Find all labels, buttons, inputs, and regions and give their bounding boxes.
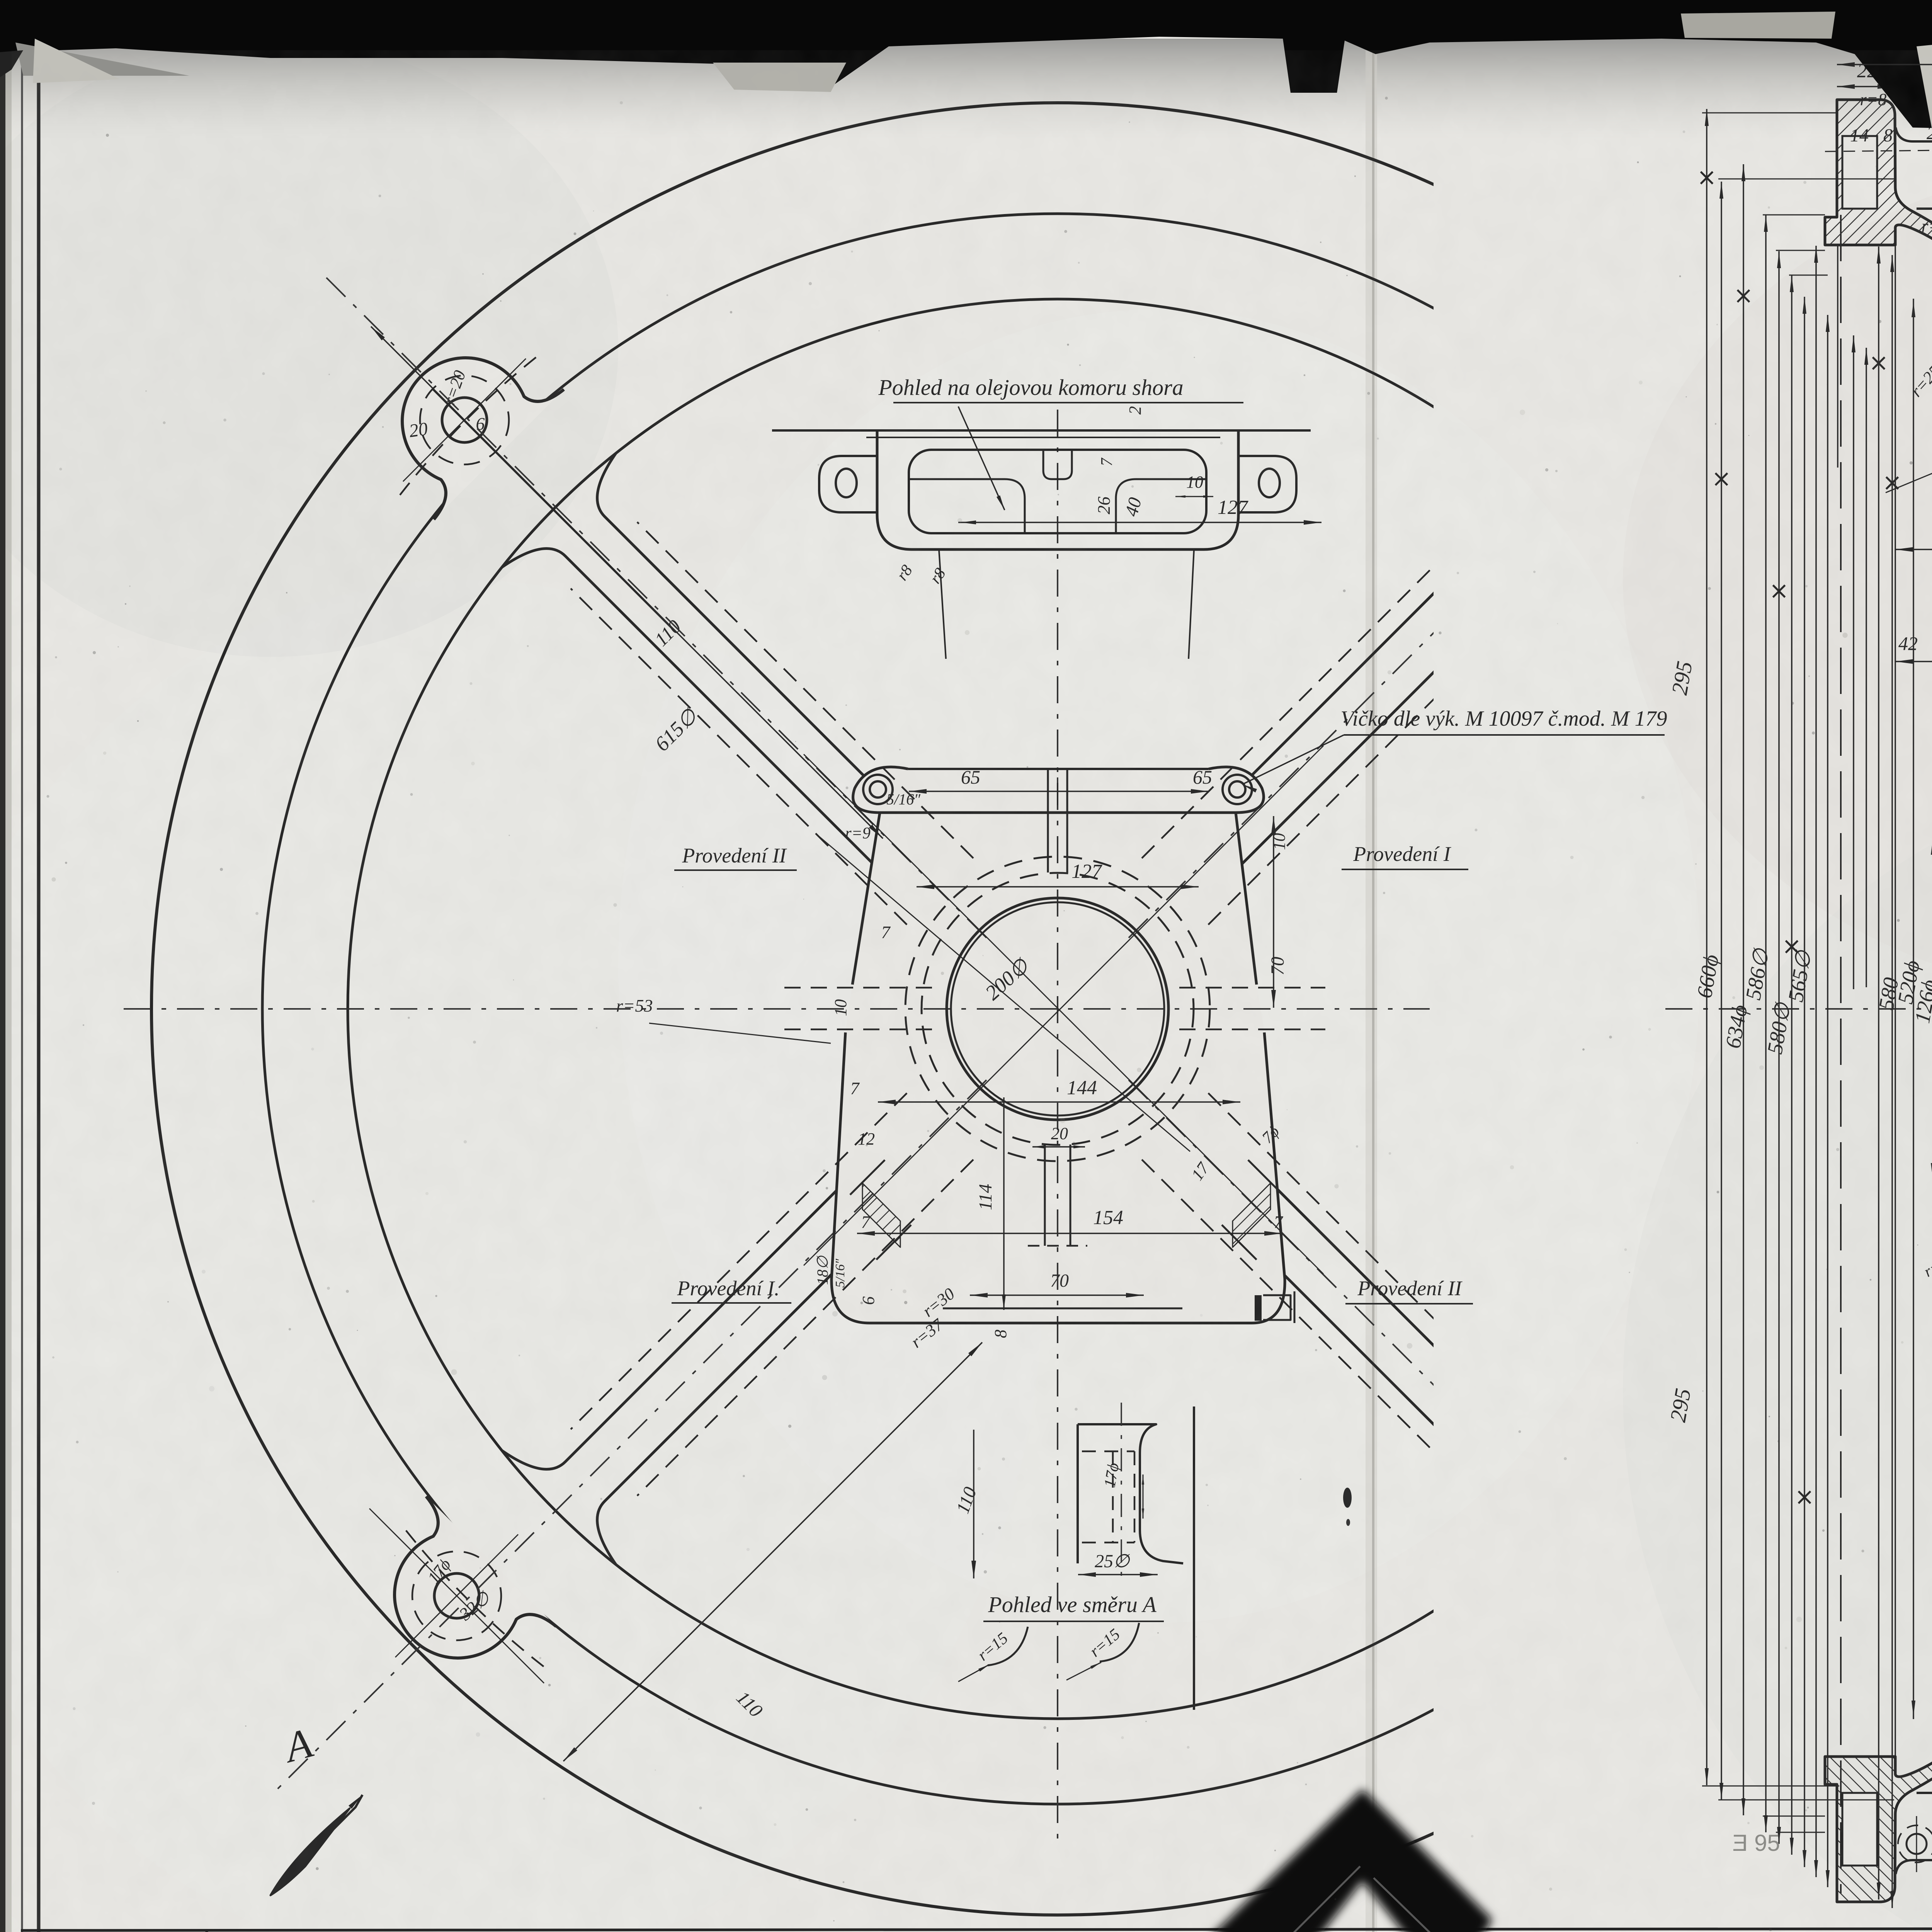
svg-text:7: 7 xyxy=(881,922,891,942)
svg-text:r=10: r=10 xyxy=(1922,216,1932,236)
svg-text:Provedení I.: Provedení I. xyxy=(677,1277,780,1300)
svg-text:5/16″: 5/16″ xyxy=(833,1259,847,1287)
svg-text:127: 127 xyxy=(1218,497,1248,519)
svg-text:25∅: 25∅ xyxy=(1095,1551,1130,1571)
svg-text:r=53: r=53 xyxy=(616,996,653,1015)
svg-text:Pohled na olejovou komoru shor: Pohled na olejovou komoru shora xyxy=(878,375,1183,400)
svg-text:20: 20 xyxy=(408,418,429,441)
svg-text:42: 42 xyxy=(1898,633,1918,654)
svg-text:154: 154 xyxy=(1093,1207,1123,1229)
svg-text:14: 14 xyxy=(1850,125,1869,146)
svg-text:7: 7 xyxy=(1098,457,1116,466)
svg-text:7: 7 xyxy=(850,1078,860,1098)
svg-text:Provedení II: Provedení II xyxy=(682,844,787,867)
svg-text:5/16″: 5/16″ xyxy=(886,791,921,808)
svg-text:2: 2 xyxy=(1126,406,1145,415)
svg-text:10: 10 xyxy=(1270,833,1289,850)
svg-text:20: 20 xyxy=(1051,1124,1068,1143)
svg-text:26: 26 xyxy=(1094,497,1114,514)
svg-text:Pohled ve směru A: Pohled ve směru A xyxy=(988,1592,1156,1617)
svg-text:r=9: r=9 xyxy=(845,825,871,842)
svg-text:65: 65 xyxy=(961,766,980,788)
svg-text:7: 7 xyxy=(1274,1212,1284,1232)
svg-text:Provedení I: Provedení I xyxy=(1353,842,1451,866)
svg-text:127: 127 xyxy=(1071,861,1102,883)
svg-text:10: 10 xyxy=(831,999,850,1016)
svg-text:Ǝ 95: Ǝ 95 xyxy=(1732,1830,1780,1856)
svg-text:Vičko dle výk. M 10097 č.mod.: Vičko dle výk. M 10097 č.mod. M 179 xyxy=(1341,707,1667,731)
svg-text:7: 7 xyxy=(861,1212,871,1232)
svg-text:10: 10 xyxy=(1186,473,1203,492)
svg-text:144: 144 xyxy=(1067,1077,1097,1099)
svg-text:8: 8 xyxy=(991,1330,1010,1338)
svg-text:70: 70 xyxy=(1050,1270,1069,1291)
svg-text:8: 8 xyxy=(1883,125,1893,146)
svg-text:114: 114 xyxy=(975,1184,996,1210)
svg-text:65: 65 xyxy=(1193,766,1212,788)
svg-text:18∅: 18∅ xyxy=(814,1255,831,1285)
svg-text:r=8: r=8 xyxy=(1860,90,1887,109)
svg-text:Provedení II: Provedení II xyxy=(1357,1277,1463,1300)
svg-text:70: 70 xyxy=(1267,957,1288,975)
